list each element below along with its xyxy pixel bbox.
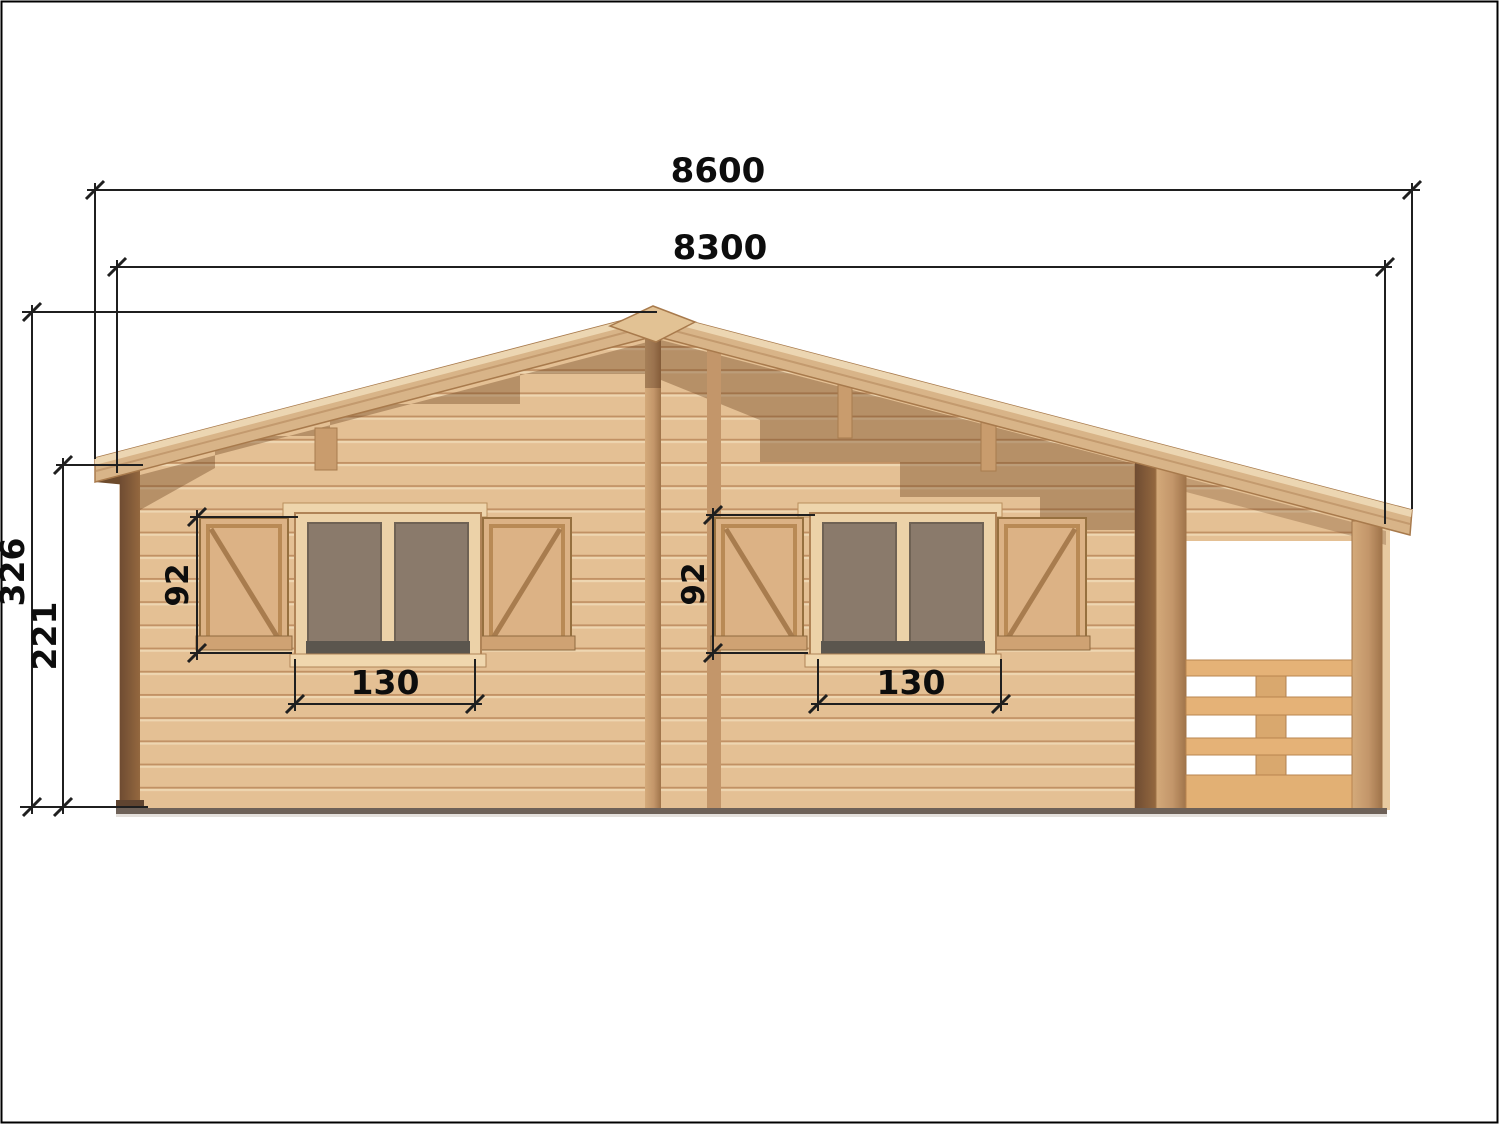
dim-label-wall-width: 8300: [673, 228, 768, 268]
dim-label-overall-width: 8600: [671, 151, 766, 191]
sill-shadow: [306, 641, 470, 654]
shutter-sill: [994, 636, 1090, 650]
window-pane: [395, 523, 468, 642]
railing-low-rail: [1186, 738, 1352, 755]
ground-line: [116, 808, 1387, 814]
porch-post-right: [1352, 521, 1382, 810]
dim-label-window-left-width: 130: [351, 663, 420, 702]
sill-shadow: [821, 641, 985, 654]
shutter-sill: [711, 636, 807, 650]
window-pane: [823, 523, 896, 642]
window-right: [711, 503, 1090, 667]
ground-shadow: [116, 814, 1387, 817]
shutter-sill: [479, 636, 575, 650]
window-pane: [308, 523, 381, 642]
dim-label-ridge-height: 326: [0, 538, 32, 607]
window-pane: [910, 523, 983, 642]
dim-label-window-left-height: 92: [160, 563, 196, 606]
railing-mid-rail: [1186, 697, 1352, 715]
dim-label-window-right-width: 130: [877, 663, 946, 702]
dim-label-eave-height: 221: [25, 602, 64, 671]
center-post: [645, 326, 661, 810]
wall-end-shadow-post: [1135, 461, 1156, 810]
purlin-block-right-2: [981, 421, 996, 471]
porch-post-left: [1156, 466, 1186, 810]
cabin: [95, 306, 1412, 817]
porch-corner-return: [1382, 524, 1390, 810]
elevation-sheet: 8600 8300 326 221 92 130 92 130: [0, 0, 1500, 1125]
railing-base-board: [1186, 775, 1352, 810]
left-corner-post: [120, 471, 140, 810]
elevation-drawing: 8600 8300 326 221 92 130 92 130: [0, 0, 1500, 1125]
window-left: [196, 503, 575, 667]
dim-label-window-right-height: 92: [676, 562, 712, 605]
purlin-block-right-1: [838, 380, 852, 438]
purlin-block-left: [315, 428, 337, 470]
shutter-sill: [196, 636, 292, 650]
railing-top-rail: [1186, 660, 1352, 676]
